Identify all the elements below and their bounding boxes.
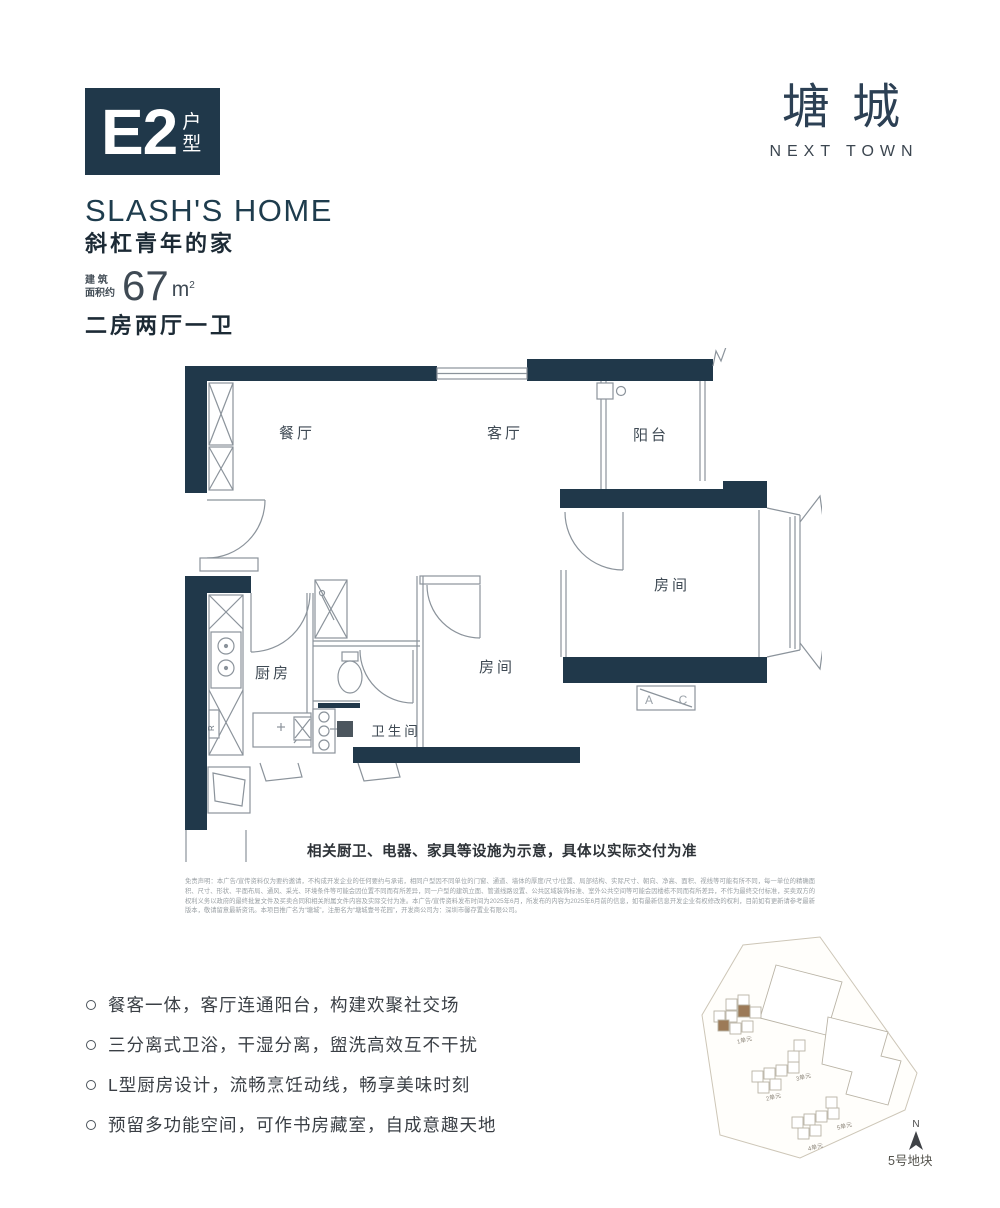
bullet-circle-icon bbox=[86, 1120, 96, 1130]
room-layout-text: 二房两厅一卫 bbox=[85, 308, 235, 340]
label-ac-a: A bbox=[645, 693, 653, 707]
highlight-list: 餐客一体，客厅连通阳台，构建欢聚社交场 三分离式卫浴，干湿分离，盥洗高效互不干扰… bbox=[86, 994, 497, 1154]
label-balcony: 阳台 bbox=[633, 427, 669, 444]
highlight-text: 餐客一体，客厅连通阳台，构建欢聚社交场 bbox=[108, 994, 460, 1016]
label-bedroom-master: 房间 bbox=[654, 577, 690, 594]
structural-walls bbox=[185, 359, 767, 830]
north-arrow-icon bbox=[909, 1131, 923, 1150]
floorplan-caption: 相关厨卫、电器、家具等设施为示意，具体以实际交付为准 bbox=[182, 840, 822, 861]
bullet-circle-icon bbox=[86, 1080, 96, 1090]
area-label-line1: 建 筑 bbox=[85, 274, 115, 287]
label-shaft-r: R bbox=[207, 725, 216, 731]
label-kitchen: 厨房 bbox=[255, 665, 291, 682]
label-living: 客厅 bbox=[487, 425, 523, 442]
brand-logo: 塘城 NEXT TOWN bbox=[752, 82, 930, 161]
area-label: 建 筑 面积约 bbox=[85, 274, 115, 300]
list-item: 三分离式卫浴，干湿分离，盥洗高效互不干扰 bbox=[86, 1034, 497, 1056]
legal-disclaimer: 免责声明：本广告/宣传资料仅为要约邀请，不构成开发企业的任何要约与承诺，相同户型… bbox=[185, 877, 815, 916]
bullet-circle-icon bbox=[86, 1000, 96, 1010]
unit-suffix: 户型 bbox=[182, 112, 204, 155]
area-info: 建 筑 面积约 67 m2 bbox=[85, 269, 195, 303]
label-dining: 餐厅 bbox=[279, 425, 315, 442]
list-item: L型厨房设计，流畅烹饪动线，畅享美味时刻 bbox=[86, 1074, 497, 1096]
label-bathroom: 卫生间 bbox=[371, 724, 421, 739]
washer-fixture bbox=[337, 721, 353, 737]
unit-code: E2 bbox=[101, 100, 177, 164]
unit-type-badge: E2 户型 bbox=[85, 88, 220, 175]
area-value: 67 bbox=[122, 269, 169, 303]
label-bedroom-second: 房间 bbox=[479, 659, 515, 676]
brand-name-cn: 塘城 bbox=[752, 82, 930, 135]
highlight-text: L型厨房设计，流畅烹饪动线，畅享美味时刻 bbox=[108, 1074, 470, 1096]
slogan-en: SLASH'S HOME bbox=[85, 193, 333, 229]
highlight-text: 预留多功能空间，可作书房藏室，自成意趣天地 bbox=[108, 1114, 497, 1136]
bullet-circle-icon bbox=[86, 1040, 96, 1050]
compass-n-label: N bbox=[912, 1119, 919, 1130]
slogan-cn: 斜杠青年的家 bbox=[85, 226, 235, 258]
area-unit: m2 bbox=[172, 278, 195, 302]
floorplan-drawing: 餐厅 客厅 阳台 房间 房间 厨房 卫生间 A C R bbox=[182, 348, 822, 862]
siteplan-drawing: 1单元 2单元 3单元 4单元 5单元 N 5号地块 bbox=[688, 925, 950, 1183]
list-item: 预留多功能空间，可作书房藏室，自成意趣天地 bbox=[86, 1114, 497, 1136]
area-label-line2: 面积约 bbox=[85, 287, 115, 300]
highlighted-unit bbox=[738, 1005, 750, 1017]
compass: N bbox=[909, 1119, 923, 1150]
plot-label: 5号地块 bbox=[888, 1154, 933, 1168]
highlighted-unit bbox=[718, 1020, 729, 1031]
list-item: 餐客一体，客厅连通阳台，构建欢聚社交场 bbox=[86, 994, 497, 1016]
highlight-text: 三分离式卫浴，干湿分离，盥洗高效互不干扰 bbox=[108, 1034, 478, 1056]
label-ac-c: C bbox=[679, 693, 688, 707]
brand-name-en: NEXT TOWN bbox=[752, 143, 930, 161]
